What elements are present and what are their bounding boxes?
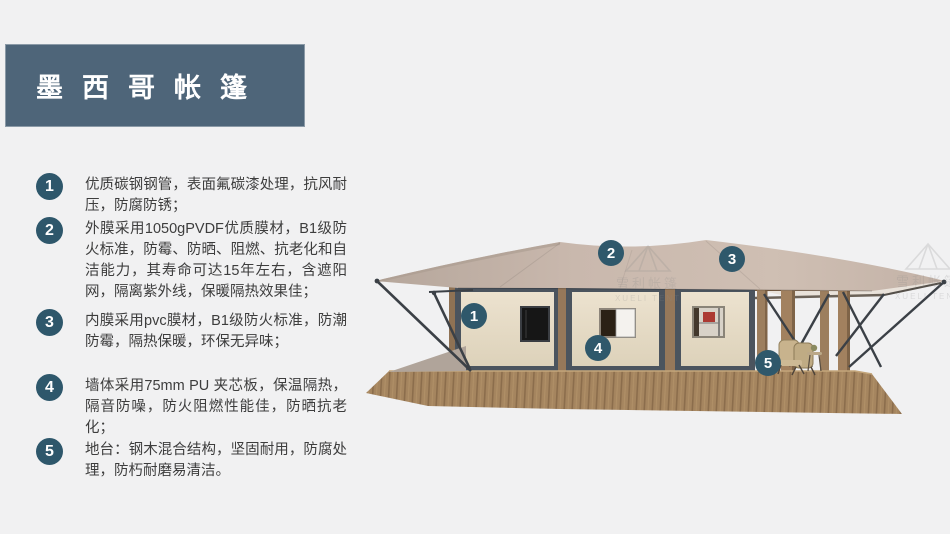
tent-illustration: 雪利帐篷 XUELI TENT 雪利帐篷 XUELI TENT (350, 200, 950, 435)
door-window (599, 308, 636, 338)
feature-item-1: 1 优质碳钢钢管，表面氟碳漆处理，抗风耐压，防腐防锈； (36, 175, 356, 217)
feature-item-2: 2 外膜采用1050gPVDF优质膜材，B1级防火标准，防霉、防晒、阻燃、抗老化… (36, 219, 356, 303)
image-badge-4: 4 (585, 335, 611, 361)
window-1 (520, 306, 550, 342)
feature-text: 优质碳钢钢管，表面氟碳漆处理，抗风耐压，防腐防锈； (85, 175, 347, 217)
image-badge-2: 2 (598, 240, 624, 266)
image-badge-1: 1 (461, 303, 487, 329)
feature-number-badge: 5 (36, 438, 63, 465)
feature-number-badge: 1 (36, 173, 63, 200)
watermark-en-2: XUELI TENT (895, 292, 950, 301)
title-banner: 墨西哥帐篷 (5, 44, 305, 127)
feature-number-badge: 2 (36, 217, 63, 244)
image-badge-3: 3 (719, 246, 745, 272)
feature-text: 外膜采用1050gPVDF优质膜材，B1级防火标准，防霉、防晒、阻燃、抗老化和自… (85, 219, 347, 303)
watermark-cn: 雪利帐篷 (616, 276, 680, 291)
slide: 墨西哥帐篷 1 优质碳钢钢管，表面氟碳漆处理，抗风耐压，防腐防锈； 2 外膜采用… (0, 0, 950, 534)
feature-text: 墙体采用75mm PU 夹芯板，保温隔热，隔音防噪，防火阻燃性能佳，防晒抗老化； (85, 376, 347, 439)
window-red-item (703, 312, 715, 322)
page-title: 墨西哥帐篷 (5, 66, 266, 105)
feature-number-badge: 3 (36, 309, 63, 336)
feature-item-3: 3 内膜采用pvc膜材，B1级防火标准，防潮防霉，隔热保暖，环保无异味； (36, 311, 356, 353)
feature-text: 地台：钢木混合结构，坚固耐用，防腐处理，防朽耐磨易清洁。 (85, 440, 347, 482)
feature-item-5: 5 地台：钢木混合结构，坚固耐用，防腐处理，防朽耐磨易清洁。 (36, 440, 356, 482)
feature-item-4: 4 墙体采用75mm PU 夹芯板，保温隔热，隔音防噪，防火阻燃性能佳，防晒抗老… (36, 376, 356, 439)
plant (811, 345, 817, 351)
image-badge-5: 5 (755, 350, 781, 376)
tent-svg: 雪利帐篷 XUELI TENT 雪利帐篷 XUELI TENT (350, 200, 950, 435)
feature-text: 内膜采用pvc膜材，B1级防火标准，防潮防霉，隔热保暖，环保无异味； (85, 311, 347, 353)
window-3 (692, 306, 725, 338)
watermark-en: XUELI TENT (615, 294, 681, 303)
feature-number-badge: 4 (36, 374, 63, 401)
watermark-cn-2: 雪利帐篷 (896, 274, 950, 289)
